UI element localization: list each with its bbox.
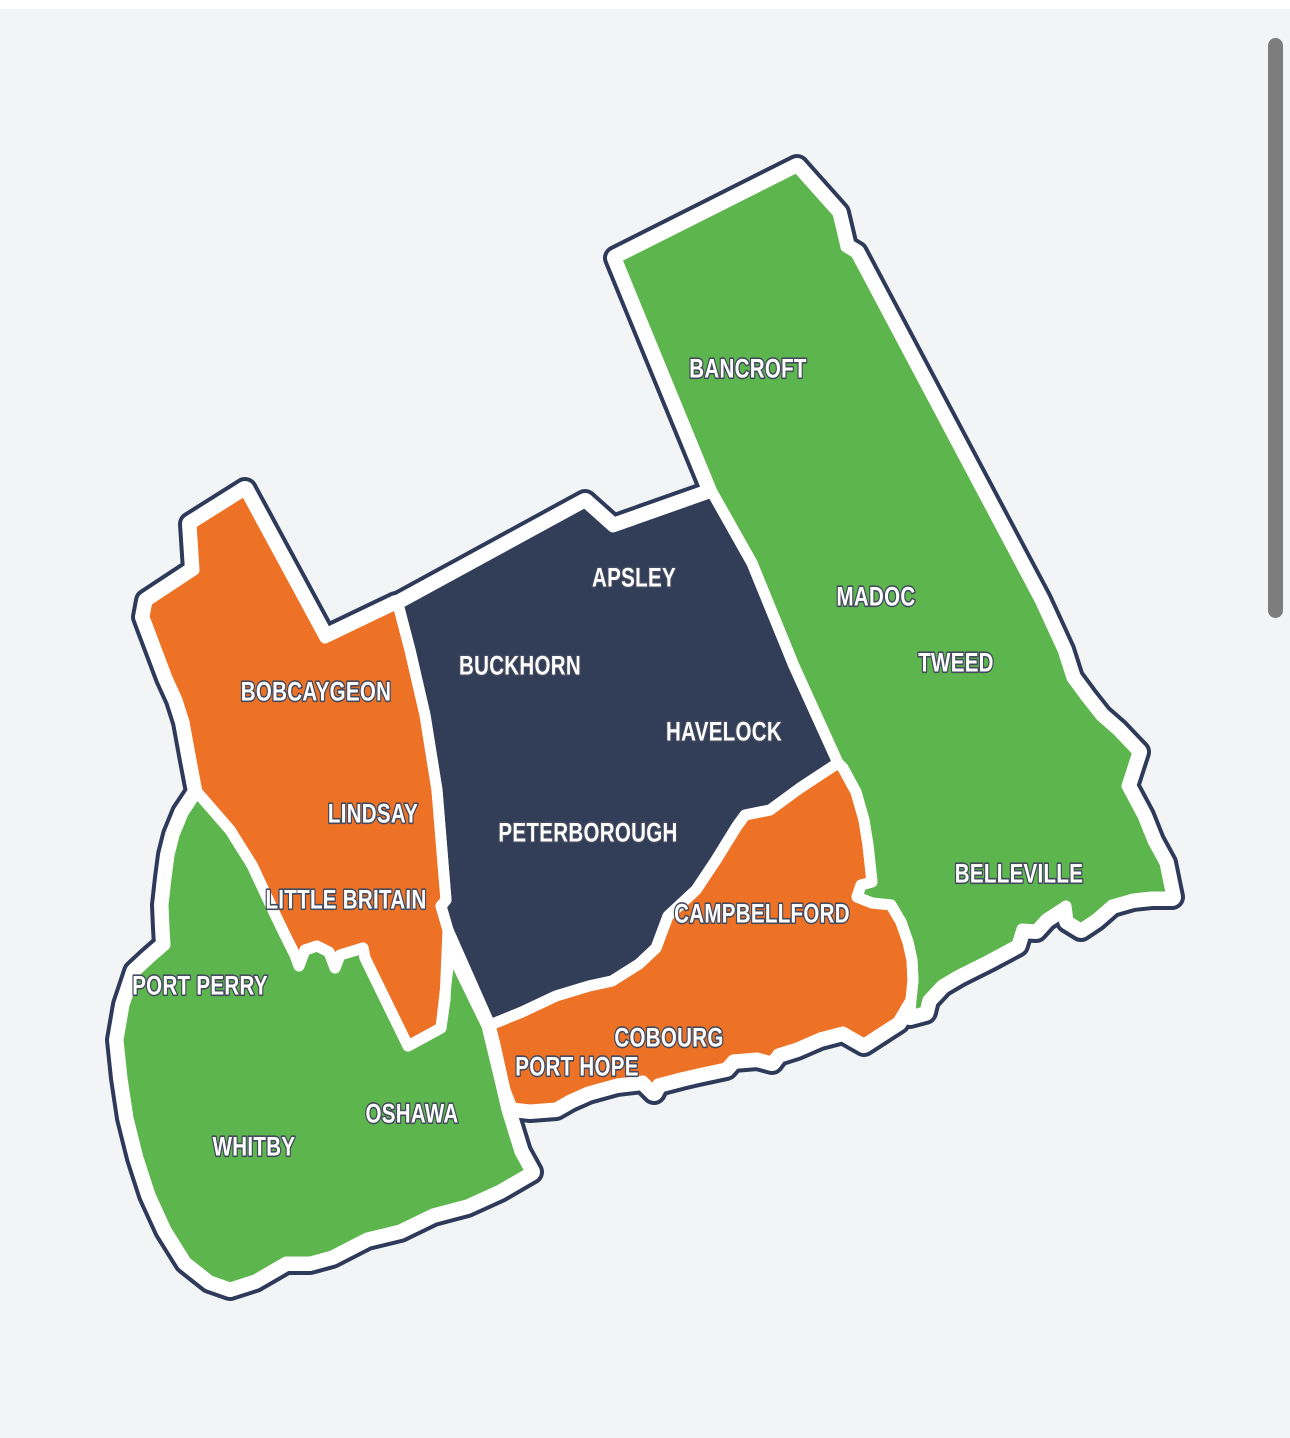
map-label-port-perry: PORT PERRY — [132, 971, 268, 1001]
map-label-bancroft: BANCROFT — [689, 354, 807, 384]
map-label-little-britain: LITTLE BRITAIN — [265, 885, 426, 915]
map-label-port-hope: PORT HOPE — [515, 1052, 639, 1082]
map-label-havelock: HAVELOCK — [666, 717, 782, 747]
map-label-campbellford: CAMPBELLFORD — [674, 899, 850, 929]
map-label-whitby: WHITBY — [213, 1132, 296, 1162]
service-area-map-image: BANCROFTMADOCTWEEDBELLEVILLEAPSLEYBUCKHO… — [0, 0, 1290, 1438]
map-label-madoc: MADOC — [836, 582, 915, 612]
map-label-bobcaygeon: BOBCAYGEON — [241, 677, 391, 707]
scrollbar-thumb[interactable] — [1268, 38, 1283, 618]
map-label-apsley: APSLEY — [592, 563, 676, 593]
map-label-tweed: TWEED — [918, 648, 994, 678]
map-label-peterborough: PETERBOROUGH — [498, 818, 677, 848]
map-label-cobourg: COBOURG — [614, 1023, 723, 1053]
map-label-belleville: BELLEVILLE — [955, 859, 1083, 889]
map-label-oshawa: OSHAWA — [366, 1099, 459, 1129]
map-label-lindsay: LINDSAY — [328, 799, 418, 829]
map-label-buckhorn: BUCKHORN — [459, 651, 581, 681]
page-viewport: BANCROFTMADOCTWEEDBELLEVILLEAPSLEYBUCKHO… — [0, 0, 1290, 1438]
